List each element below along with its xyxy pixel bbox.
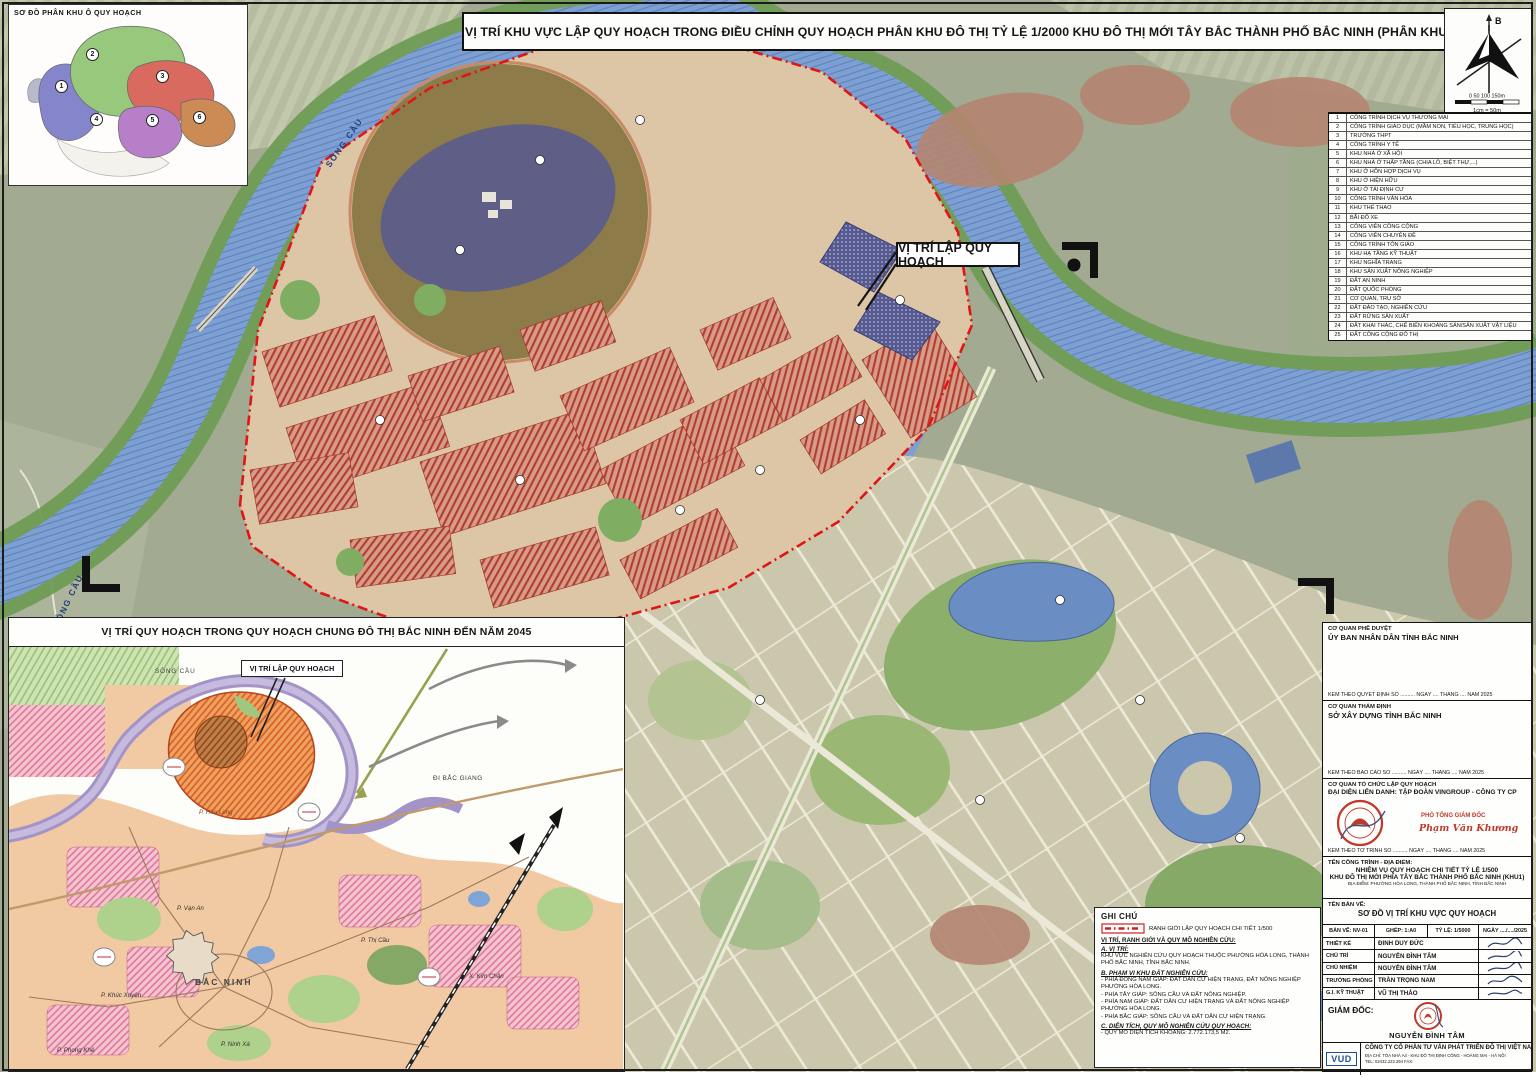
ward-label: P. Hòa Long	[199, 809, 233, 816]
legend-item-number: 5	[1329, 150, 1347, 158]
inset-general-plan-title: VỊ TRÍ QUY HOẠCH TRONG QUY HOẠCH CHUNG Đ…	[9, 618, 624, 647]
notes-heading: VỊ TRÍ, RANH GIỚI VÀ QUY MÔ NGHIÊN CỨU:	[1101, 937, 1314, 944]
notes-b-item: - PHÍA NAM GIÁP: ĐẤT DÂN CƯ HIỆN TRẠNG V…	[1101, 999, 1314, 1014]
legend-item-number: 13	[1329, 223, 1347, 231]
staff-role: TRƯỞNG PHÒNG	[1323, 975, 1375, 986]
sheet-title: VỊ TRÍ KHU VỰC LẬP QUY HOẠCH TRONG ĐIỀU …	[462, 12, 1472, 51]
legend-row: 23ĐẤT RỪNG SẢN XUẤT	[1329, 313, 1531, 322]
legend-row: 22ĐẤT ĐÀO TẠO, NGHIÊN CỨU	[1329, 304, 1531, 313]
signer-name: Phạm Văn Khương	[1419, 823, 1518, 834]
legend-row: 24ĐẤT KHAI THÁC, CHẾ BIẾN KHOÁNG SẢN/SẢN…	[1329, 322, 1531, 331]
legend-item-number: 24	[1329, 322, 1347, 330]
company-logo: VUD	[1326, 1052, 1357, 1066]
scale-ticks: 0 50 100 150m	[1469, 94, 1505, 100]
legend-item-label: CÔNG TRÌNH GIÁO DỤC (MẦM NON, TIỂU HỌC, …	[1347, 123, 1531, 131]
project-line3: ĐỊA ĐIỂM: PHƯỜNG HÒA LONG, THÀNH PHỐ BẮC…	[1328, 881, 1526, 886]
approval-label: CƠ QUAN PHÊ DUYỆT	[1328, 626, 1526, 632]
review-section: CƠ QUAN THẨM ĐỊNH SỞ XÂY DỰNG TỈNH BẮC N…	[1323, 701, 1531, 779]
ward-label: P. Thị Cầu	[361, 937, 389, 944]
staff-role: THIẾT KẾ	[1323, 938, 1375, 949]
north-arrow-icon	[1457, 14, 1521, 93]
legend-row: 14CÔNG VIÊN CHUYÊN ĐỀ	[1329, 232, 1531, 241]
legend-row: 16KHU HẠ TẦNG KỸ THUẬT	[1329, 250, 1531, 259]
zoning-diagram-map	[9, 5, 246, 184]
legend-row: 18KHU SẢN XUẤT NÔNG NGHIỆP	[1329, 268, 1531, 277]
legend-row: 17KHU NGHĨA TRANG	[1329, 259, 1531, 268]
signature-icon	[1486, 951, 1524, 962]
meta-size: GHÉP: 1:A0	[1375, 925, 1428, 937]
project-section: TÊN CÔNG TRÌNH - ĐỊA ĐIỂM: NHIỆM VỤ QUY …	[1323, 857, 1531, 899]
legend-row: 15CÔNG TRÌNH TÔN GIÁO	[1329, 241, 1531, 250]
approval-authority: ỦY BAN NHÂN DÂN TỈNH BẮC NINH	[1328, 633, 1526, 642]
inset-zoning-diagram: SƠ ĐỒ PHÂN KHU Ô QUY HOẠCH 1 2 3 4 5 6	[8, 4, 248, 186]
legend-item-number: 21	[1329, 295, 1347, 303]
legend-item-label: KHU NHÀ Ở XÃ HỘI	[1347, 150, 1531, 158]
legend-row: 11KHU THỂ THAO	[1329, 204, 1531, 213]
legend-item-label: CÔNG TRÌNH DỊCH VỤ THƯƠNG MẠI	[1347, 114, 1531, 122]
legend-item-number: 3	[1329, 132, 1347, 140]
zone-badge-5: 5	[146, 114, 159, 127]
city-label: BẮC NINH	[195, 977, 253, 987]
legend-item-label: ĐẤT RỪNG SẢN XUẤT	[1347, 313, 1531, 321]
zone-badge-1: 1	[55, 80, 68, 93]
legend-item-number: 20	[1329, 286, 1347, 294]
legend-item-number: 12	[1329, 214, 1347, 222]
staff-name: TRẦN TRỌNG NAM	[1375, 975, 1479, 986]
compass-scale-box: B 0 50 100 150m 1cm = 50m	[1444, 8, 1532, 118]
legend-item-label: ĐẤT KHAI THÁC, CHẾ BIẾN KHOÁNG SẢN/SẢN X…	[1347, 322, 1531, 330]
director-seal-icon	[1407, 1001, 1449, 1031]
notes-b-item: - PHÍA BẮC GIÁP: SÔNG CẦU VÀ ĐẤT DÂN CƯ …	[1101, 1014, 1314, 1021]
inset-river-label: SÔNG CẦU	[155, 668, 196, 675]
north-label: B	[1495, 16, 1502, 26]
drawing-meta-row: BẢN VẼ: NV-01 GHÉP: 1:A0 TỶ LỆ: 1/5000 N…	[1323, 925, 1531, 938]
drawing-name: SƠ ĐỒ VỊ TRÍ KHU VỰC QUY HOẠCH	[1328, 909, 1526, 918]
legend-row: 25ĐẤT CÔNG CỘNG ĐÔ THỊ	[1329, 331, 1531, 340]
legend-item-number: 23	[1329, 313, 1347, 321]
review-footer: KÈM THEO BÁO CÁO SỐ .......... NGÀY ....…	[1328, 770, 1528, 776]
legend-item-label: KHU HẠ TẦNG KỸ THUẬT	[1347, 250, 1531, 258]
company-section: VUD CÔNG TY CỔ PHẦN TƯ VẤN PHÁT TRIỂN ĐÔ…	[1323, 1043, 1531, 1075]
company-logo-box: VUD	[1323, 1043, 1361, 1075]
notes-a-title: A. VỊ TRÍ:	[1101, 946, 1314, 953]
director-name: NGUYỄN ĐÌNH TÂM	[1323, 1031, 1531, 1040]
notes-a-text: KHU VỰC NGHIÊN CỨU QUY HOẠCH THUỘC PHƯỜN…	[1101, 953, 1314, 968]
legend-item-label: CÔNG VIÊN CHUYÊN ĐỀ	[1347, 232, 1531, 240]
project-label: TÊN CÔNG TRÌNH - ĐỊA ĐIỂM:	[1328, 860, 1526, 866]
sheet-title-text: VỊ TRÍ KHU VỰC LẬP QUY HOẠCH TRONG ĐIỀU …	[465, 25, 1469, 39]
staff-name: VŨ THỊ THẢO	[1375, 988, 1479, 999]
legend-row: 5KHU NHÀ Ở XÃ HỘI	[1329, 150, 1531, 159]
director-section: GIÁM ĐỐC: NGUYỄN ĐÌNH TÂM	[1323, 1000, 1531, 1043]
zone-badge-3: 3	[156, 70, 169, 83]
signature-icon	[1486, 988, 1524, 999]
legend-item-number: 6	[1329, 159, 1347, 167]
legend-row: 4CÔNG TRÌNH Y TẾ	[1329, 141, 1531, 150]
legend-item-number: 25	[1329, 331, 1347, 340]
legend-item-label: KHU Ở HỖN HỢP DỊCH VỤ	[1347, 168, 1531, 176]
signature-icon	[1486, 975, 1524, 986]
staff-role: CHỦ NHIỆM	[1323, 963, 1375, 974]
staff-name: ĐINH DUY ĐỨC	[1375, 938, 1479, 949]
review-authority: SỞ XÂY DỰNG TỈNH BẮC NINH	[1328, 711, 1526, 720]
legend-item-number: 14	[1329, 232, 1347, 240]
legend-item-number: 8	[1329, 177, 1347, 185]
legend-row: 1CÔNG TRÌNH DỊCH VỤ THƯƠNG MẠI	[1329, 114, 1531, 123]
legend-item-label: ĐẤT QUỐC PHÒNG	[1347, 286, 1531, 294]
staff-row: CHỦ NHIỆM NGUYỄN ĐÌNH TÂM	[1323, 963, 1531, 975]
direction-label: ĐI BẮC GIANG	[433, 775, 483, 782]
location-callout: VỊ TRÍ LẬP QUY HOẠCH	[896, 242, 1020, 267]
company-address: ĐỊA CHỈ: TÒA NHÀ A4 - KHU ĐÔ THỊ ĐỊNH CÔ…	[1365, 1053, 1527, 1058]
legend-item-number: 16	[1329, 250, 1347, 258]
legend-item-label: ĐẤT CÔNG CỘNG ĐÔ THỊ	[1347, 331, 1531, 340]
legend-item-number: 2	[1329, 123, 1347, 131]
approval-section: CƠ QUAN PHÊ DUYỆT ỦY BAN NHÂN DÂN TỈNH B…	[1323, 623, 1531, 701]
legend-item-number: 17	[1329, 259, 1347, 267]
legend-item-label: CÔNG TRÌNH Y TẾ	[1347, 141, 1531, 149]
zone-badge-6: 6	[193, 111, 206, 124]
legend-row: 3TRƯỜNG THPT	[1329, 132, 1531, 141]
legend-item-label: CƠ QUAN, TRỤ SỞ	[1347, 295, 1531, 303]
ward-label: P. Ninh Xá	[221, 1041, 250, 1048]
signature-icon	[1486, 963, 1524, 974]
legend-row: 2CÔNG TRÌNH GIÁO DỤC (MẦM NON, TIỂU HỌC,…	[1329, 123, 1531, 132]
signer-role: PHÓ TỔNG GIÁM ĐỐC	[1421, 813, 1485, 819]
ward-label: X. Kim Chân	[469, 973, 504, 980]
drawing-label: TÊN BẢN VẼ:	[1328, 902, 1526, 908]
legend-row: 21CƠ QUAN, TRỤ SỞ	[1329, 295, 1531, 304]
legend-item-label: CÔNG TRÌNH TÔN GIÁO	[1347, 241, 1531, 249]
legend-item-label: BÃI ĐỖ XE	[1347, 214, 1531, 222]
meta-sheet: BẢN VẼ: NV-01	[1323, 925, 1375, 937]
legend-item-number: 10	[1329, 195, 1347, 203]
legend-item-label: TRƯỜNG THPT	[1347, 132, 1531, 140]
notes-title: GHI CHÚ	[1101, 912, 1314, 921]
drawing-section: TÊN BẢN VẼ: SƠ ĐỒ VỊ TRÍ KHU VỰC QUY HOẠ…	[1323, 899, 1531, 925]
legend-row: 20ĐẤT QUỐC PHÒNG	[1329, 286, 1531, 295]
legend-item-label: CÔNG VIÊN CÔNG CỘNG	[1347, 223, 1531, 231]
zone-badge-2: 2	[86, 48, 99, 61]
approval-footer: KÈM THEO QUYẾT ĐỊNH SỐ .......... NGÀY .…	[1328, 692, 1528, 698]
inset-general-plan: VỊ TRÍ QUY HOẠCH TRONG QUY HOẠCH CHUNG Đ…	[8, 617, 625, 1072]
legend-row: 19ĐẤT AN NINH	[1329, 277, 1531, 286]
legend-row: 7KHU Ở HỖN HỢP DỊCH VỤ	[1329, 168, 1531, 177]
project-line1: NHIỆM VỤ QUY HOẠCH CHI TIẾT TỶ LỆ 1/500	[1328, 867, 1526, 874]
legend-item-label: KHU THỂ THAO	[1347, 204, 1531, 212]
legend-row: 12BÃI ĐỖ XE	[1329, 214, 1531, 223]
staff-name: NGUYỄN ĐÌNH TÂM	[1375, 963, 1479, 974]
staff-row: TRƯỞNG PHÒNG TRẦN TRỌNG NAM	[1323, 975, 1531, 987]
review-label: CƠ QUAN THẨM ĐỊNH	[1328, 704, 1526, 710]
inset-location-callout: VỊ TRÍ LẬP QUY HOẠCH	[241, 660, 343, 677]
legend-item-label: ĐẤT ĐÀO TẠO, NGHIÊN CỨU	[1347, 304, 1531, 312]
flow-arrows	[369, 661, 567, 767]
ward-label: P. Vạn An	[177, 905, 204, 912]
boundary-symbol-label: RANH GIỚI LẬP QUY HOẠCH CHI TIẾT 1/500	[1149, 926, 1272, 932]
inset-general-plan-map: SÔNG CẦU VỊ TRÍ LẬP QUY HOẠCH ĐI BẮC GIA…	[9, 647, 624, 1069]
company-tel: TEL: 02432.222.294 FAX:	[1365, 1059, 1527, 1064]
legend-item-number: 7	[1329, 168, 1347, 176]
staff-role: G.I. KỸ THUẬT	[1323, 988, 1375, 999]
legend-item-label: CÔNG TRÌNH VĂN HÓA	[1347, 195, 1531, 203]
project-line2: KHU ĐÔ THỊ MỚI PHÍA TÂY BẮC THÀNH PHỐ BẮ…	[1328, 874, 1526, 881]
staff-role: CHỦ TRÌ	[1323, 950, 1375, 961]
legend-item-label: KHU NGHĨA TRANG	[1347, 259, 1531, 267]
legend-row: 10CÔNG TRÌNH VĂN HÓA	[1329, 195, 1531, 204]
staff-row: CHỦ TRÌ NGUYỄN ĐÌNH TÂM	[1323, 950, 1531, 962]
organizer-section: CƠ QUAN TỔ CHỨC LẬP QUY HOẠCH ĐẠI DIỆN L…	[1323, 779, 1531, 857]
legend-item-number: 1	[1329, 114, 1347, 122]
staff-row: THIẾT KẾ ĐINH DUY ĐỨC	[1323, 938, 1531, 950]
legend-item-label: KHU NHÀ Ở THẤP TẦNG (CHIA LÔ, BIỆT THỰ,.…	[1347, 159, 1531, 167]
zone-badge-4: 4	[90, 113, 103, 126]
zone-6	[181, 99, 235, 147]
organizer-footer: KÈM THEO TỜ TRÌNH SỐ .......... NGÀY ...…	[1328, 848, 1528, 854]
meta-date: NGÀY ..../..../2025	[1479, 925, 1531, 937]
meta-scale: TỶ LỆ: 1/5000	[1428, 925, 1479, 937]
ward-label: P. Khúc Xuyên	[101, 992, 141, 999]
legend-item-number: 11	[1329, 204, 1347, 212]
legend-row: 6KHU NHÀ Ở THẤP TẦNG (CHIA LÔ, BIỆT THỰ,…	[1329, 159, 1531, 168]
legend-item-number: 4	[1329, 141, 1347, 149]
title-block: CƠ QUAN PHÊ DUYỆT ỦY BAN NHÂN DÂN TỈNH B…	[1322, 622, 1532, 1072]
signature-icon	[1486, 938, 1524, 949]
staff-row: G.I. KỸ THUẬT VŨ THỊ THẢO	[1323, 988, 1531, 1000]
legend-table: 1CÔNG TRÌNH DỊCH VỤ THƯƠNG MẠI 2CÔNG TRÌ…	[1328, 112, 1532, 341]
staff-name: NGUYỄN ĐÌNH TÂM	[1375, 950, 1479, 961]
legend-item-number: 18	[1329, 268, 1347, 276]
legend-item-label: KHU Ở HIỆN HỮU	[1347, 177, 1531, 185]
legend-item-label: ĐẤT AN NINH	[1347, 277, 1531, 285]
boundary-symbol-icon	[1101, 923, 1145, 934]
scale-bar	[1455, 100, 1519, 104]
legend-item-number: 22	[1329, 304, 1347, 312]
notes-panel: GHI CHÚ RANH GIỚI LẬP QUY HOẠCH CHI TIẾT…	[1094, 907, 1321, 1068]
inset-zoning-title: SƠ ĐỒ PHÂN KHU Ô QUY HOẠCH	[14, 8, 141, 17]
company-name: CÔNG TY CỔ PHẦN TƯ VẤN PHÁT TRIỂN ĐÔ THỊ…	[1365, 1045, 1527, 1051]
legend-item-label: KHU SẢN XUẤT NÔNG NGHIỆP	[1347, 268, 1531, 276]
company-seal-icon	[1333, 799, 1387, 847]
notes-b-item: - PHÍA ĐÔNG NAM GIÁP: ĐẤT DÂN CƯ HIỆN TR…	[1101, 977, 1314, 992]
location-callout-text: VỊ TRÍ LẬP QUY HOẠCH	[898, 241, 1018, 269]
legend-item-number: 19	[1329, 277, 1347, 285]
legend-item-number: 9	[1329, 186, 1347, 194]
director-label: GIÁM ĐỐC:	[1328, 1005, 1374, 1015]
legend-row: 8KHU Ở HIỆN HỮU	[1329, 177, 1531, 186]
legend-row: 13CÔNG VIÊN CÔNG CỘNG	[1329, 223, 1531, 232]
legend-item-number: 15	[1329, 241, 1347, 249]
notes-b-item: - PHÍA TÂY GIÁP: SÔNG CẦU VÀ ĐẤT NÔNG NG…	[1101, 992, 1314, 999]
legend-row: 9KHU Ở TÁI ĐỊNH CƯ	[1329, 186, 1531, 195]
organizer-name: ĐẠI DIỆN LIÊN DANH: TẬP ĐOÀN VINGROUP - …	[1328, 789, 1526, 796]
notes-c-text: - QUY MÔ DIỆN TÍCH KHOẢNG: 2.772.173,5 M…	[1101, 1030, 1314, 1037]
notes-b-title: B. PHẠM VI KHU ĐẤT NGHIÊN CỨU:	[1101, 970, 1314, 977]
ward-label: P. Phong Khê	[57, 1047, 94, 1054]
legend-item-label: KHU Ở TÁI ĐỊNH CƯ	[1347, 186, 1531, 194]
organizer-label: CƠ QUAN TỔ CHỨC LẬP QUY HOẠCH	[1328, 782, 1526, 788]
